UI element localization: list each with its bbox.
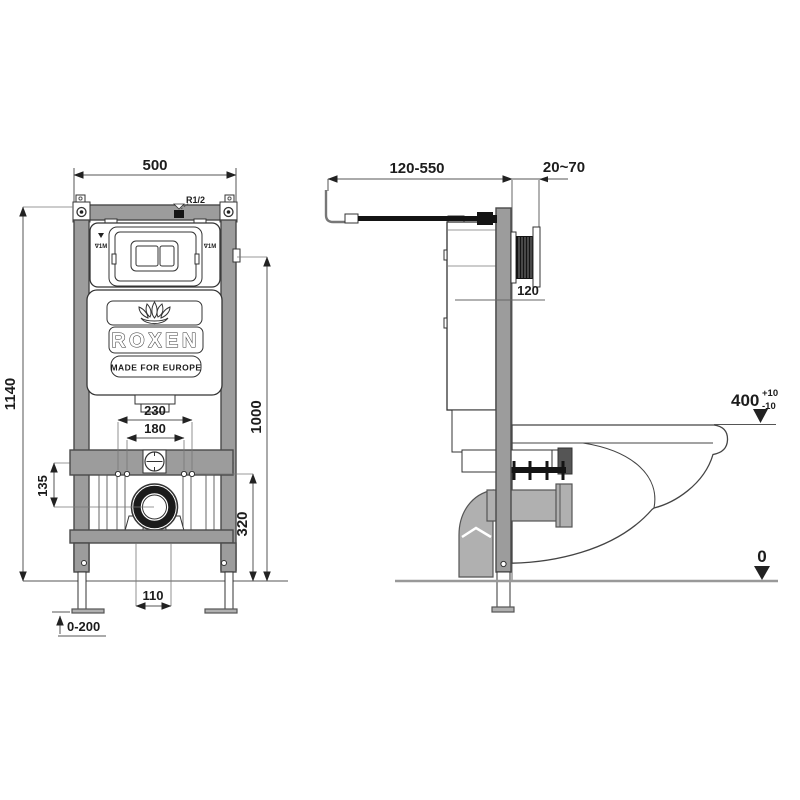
dim-120-550-label: 120-550 — [389, 160, 444, 177]
water-level-label-left: ∇1M — [95, 243, 108, 250]
threaded-rod-right — [183, 475, 191, 531]
water-supply-assembly — [326, 190, 497, 225]
bolt-hole — [115, 471, 120, 476]
level-triangle-icon — [754, 566, 770, 580]
lower-upright-right — [221, 543, 236, 572]
brand-name: ROXEN — [111, 330, 200, 352]
drain-pipe-flange — [556, 484, 572, 527]
level-400-label: 400 — [731, 391, 759, 410]
bolt-hole — [181, 471, 186, 476]
wall-bracket-right — [220, 195, 237, 222]
dim-0-200-label: 0-200 — [67, 619, 100, 634]
bolt-dot-icon — [227, 210, 231, 214]
dim-1140-label: 1140 — [2, 378, 19, 411]
roxen-logo: ROXEN MADE FOR EUROPE — [107, 301, 203, 377]
foot-plate-right — [205, 609, 237, 613]
leg-screw-left — [82, 561, 87, 566]
level-triangle-icon — [753, 409, 768, 423]
water-level-label-right: ∇1M — [204, 243, 217, 250]
dim-1000-label: 1000 — [248, 400, 265, 433]
flush-button-small — [160, 246, 174, 266]
front-view: R1/2 ∇1M ∇1M — [2, 157, 288, 636]
technical-drawing-page: R1/2 ∇1M ∇1M — [0, 0, 800, 800]
level-400-tol-plus: +10 — [762, 388, 778, 399]
flush-button-large — [136, 246, 158, 266]
cistern-side — [444, 216, 496, 452]
lower-upright-left — [74, 543, 89, 572]
foot-plate-side — [492, 607, 514, 612]
inlet-label: R1/2 — [186, 195, 205, 205]
dim-1140: 1140 — [2, 207, 73, 581]
frame-upright-left — [74, 220, 89, 570]
wall-bracket-left — [73, 195, 90, 222]
bolt-dot-icon — [80, 210, 84, 214]
installation-frame-drawing: R1/2 ∇1M ∇1M — [0, 0, 800, 800]
frame-bottom-rail — [70, 530, 233, 543]
supply-rod — [358, 216, 478, 221]
strut-right — [206, 475, 214, 530]
leg-screw-right — [222, 561, 227, 566]
dim-20-70: 20~70 — [503, 159, 585, 182]
level-marker-0: 0 — [754, 547, 770, 580]
upright-clip-right — [233, 249, 240, 262]
dim-110-label: 110 — [143, 588, 164, 603]
foot-plate-left — [72, 609, 104, 613]
dim-120-550: 120-550 — [328, 160, 512, 191]
flush-actuator-side — [511, 227, 540, 287]
inlet-fitting — [345, 214, 358, 223]
frame-bar-side — [496, 208, 511, 572]
side-view: 120-550 20~70 120 400 +10 -10 0 — [326, 159, 778, 612]
brand-tagline: MADE FOR EUROPE — [110, 363, 201, 373]
dim-0-200: 0-200 — [52, 612, 106, 636]
dim-230-label: 230 — [144, 403, 166, 418]
adjustable-leg-side — [497, 572, 510, 608]
level-0-label: 0 — [757, 547, 766, 566]
inlet-port-icon — [174, 210, 184, 218]
dim-135-label: 135 — [35, 475, 50, 497]
threaded-rod-left — [117, 475, 125, 531]
bolt-hole — [124, 471, 129, 476]
supply-valve-block — [477, 212, 493, 225]
dim-180-label: 180 — [144, 421, 166, 436]
strut-left — [99, 475, 107, 530]
flush-pipe-fitting — [143, 450, 166, 473]
dim-500: 500 — [74, 157, 236, 202]
dim-320-label: 320 — [234, 511, 251, 536]
adjustable-leg-right — [225, 572, 233, 609]
level-marker-400: 400 +10 -10 — [714, 388, 778, 425]
dim-110: 110 — [136, 543, 171, 606]
dim-20-70-label: 20~70 — [543, 159, 585, 176]
bolt-hole — [189, 471, 194, 476]
flush-plate — [109, 227, 202, 286]
adjustable-leg-left — [78, 572, 86, 609]
leg-screw-side — [501, 561, 506, 566]
dim-500-label: 500 — [142, 157, 167, 174]
frame-top-rail — [74, 205, 236, 220]
dim-120-label: 120 — [517, 283, 539, 298]
